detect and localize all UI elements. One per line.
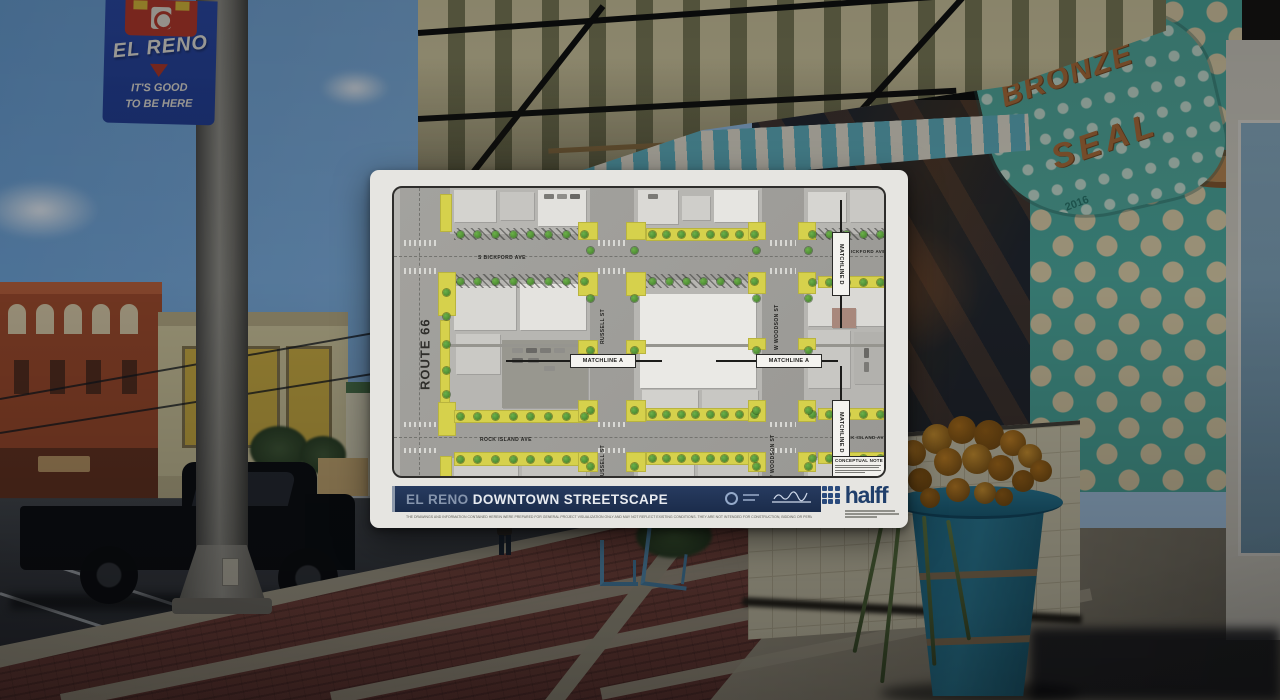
- map-block-field: [394, 188, 400, 478]
- map-building-roof: [714, 190, 758, 222]
- matchline-d-line: [840, 366, 842, 400]
- map-tree: [563, 278, 570, 285]
- map-tree: [805, 463, 812, 470]
- map-tree: [860, 279, 867, 286]
- sheet-title-project: EL RENO: [406, 492, 469, 507]
- map-tree: [666, 278, 673, 285]
- map-tree: [581, 456, 588, 463]
- map-building-roof: [454, 190, 496, 222]
- map-parked-car: [570, 194, 580, 199]
- map-alley: [450, 344, 590, 347]
- map-tree: [753, 407, 760, 414]
- map-tree: [587, 347, 594, 354]
- map-tree: [678, 411, 685, 418]
- seal-logo-text: [743, 494, 759, 496]
- map-tree: [474, 278, 481, 285]
- map-tree: [707, 411, 714, 418]
- map-crosswalk: [404, 240, 438, 246]
- map-tree: [809, 279, 816, 286]
- map-tree: [527, 278, 534, 285]
- halff-grid-icon: [822, 486, 840, 504]
- street-label-russell-st: RUSSELL ST: [600, 444, 613, 478]
- map-tree: [492, 231, 499, 238]
- map-sidewalk-highlight: [440, 194, 452, 232]
- map-tree: [510, 413, 517, 420]
- matchline-d-label: MATCHLINE D: [832, 400, 850, 464]
- halff-address-line: [845, 513, 899, 515]
- map-tree: [692, 411, 699, 418]
- map-tree: [631, 463, 638, 470]
- map-tree: [545, 456, 552, 463]
- map-tree: [753, 295, 760, 302]
- streetscape-plan-sheet: ROUTE 66 S BICKFORD AVE S BICKFORD AVE R…: [370, 170, 908, 528]
- halff-address-line: [845, 516, 877, 518]
- map-parked-car: [554, 348, 565, 353]
- map-tree: [751, 455, 758, 462]
- map-tree: [736, 455, 743, 462]
- map-tree: [805, 347, 812, 354]
- map-tree: [753, 463, 760, 470]
- map-tree: [474, 456, 481, 463]
- map-sidewalk-highlight: [440, 456, 452, 478]
- map-tree: [443, 367, 450, 374]
- map-tree: [457, 231, 464, 238]
- map-parked-car: [648, 194, 658, 199]
- map-tree: [809, 231, 816, 238]
- map-tree: [545, 278, 552, 285]
- map-tree: [492, 456, 499, 463]
- conceptual-note-title: CONCEPTUAL NOTE: [835, 458, 883, 463]
- street-label-russell-st: RUSSELL ST: [600, 298, 613, 344]
- halff-logo: halff: [822, 482, 904, 508]
- conceptual-note-textline: [835, 472, 865, 473]
- map-crosswalk: [770, 240, 796, 246]
- map-sidewalk-highlight: [578, 272, 598, 296]
- matchline-a-line: [820, 360, 838, 362]
- map-tree: [563, 231, 570, 238]
- map-tree: [663, 231, 670, 238]
- map-tree: [751, 231, 758, 238]
- map-building-roof: [854, 332, 884, 384]
- map-sidewalk-highlight: [748, 222, 766, 240]
- map-parked-car: [544, 194, 554, 199]
- map-tree: [649, 278, 656, 285]
- conceptual-note-textline: [835, 470, 881, 471]
- map-tree: [734, 278, 741, 285]
- map-tree: [474, 231, 481, 238]
- map-crosswalk: [598, 240, 626, 246]
- conceptual-note-box: CONCEPTUAL NOTE: [832, 456, 886, 478]
- map-tree: [707, 455, 714, 462]
- map-tree: [581, 231, 588, 238]
- street-label-w-woodson-st: W WOODSON ST: [774, 294, 787, 350]
- map-tree: [721, 231, 728, 238]
- map-building-roof: [456, 334, 500, 374]
- map-tree: [631, 247, 638, 254]
- sheet-disclaimer: THE DRAWINGS AND INFORMATION CONTAINED H…: [406, 515, 812, 519]
- map-tree: [805, 407, 812, 414]
- map-tree: [649, 411, 656, 418]
- map-tree: [678, 455, 685, 462]
- halff-address-line: [845, 510, 895, 512]
- sheet-title-name: DOWNTOWN STREETSCAPE: [473, 492, 668, 507]
- map-crosswalk: [404, 422, 438, 427]
- map-crosswalk: [404, 448, 438, 453]
- map-tree: [527, 231, 534, 238]
- map-tree: [443, 341, 450, 348]
- map-building-roof: [520, 284, 586, 330]
- map-tree: [877, 279, 884, 286]
- map-tree: [443, 289, 450, 296]
- map-building-roof: [500, 192, 534, 220]
- screenshot-root: BRONZE SEAL 2016 EL RENO IT'S GOOD TO BE…: [0, 0, 1280, 700]
- map-parked-car: [864, 362, 869, 372]
- map-crosswalk: [598, 268, 626, 274]
- matchline-a-label: MATCHLINE A: [570, 354, 636, 368]
- halff-wordmark: halff: [845, 484, 888, 507]
- map-tree: [753, 247, 760, 254]
- map-tree: [443, 391, 450, 398]
- map-tree: [587, 407, 594, 414]
- map-tree: [510, 278, 517, 285]
- map-tree: [492, 278, 499, 285]
- map-tree: [631, 347, 638, 354]
- map-crosswalk: [404, 268, 438, 274]
- map-parked-car: [864, 348, 869, 358]
- map-decor-layer: [394, 188, 884, 476]
- matchline-a-line: [634, 360, 662, 362]
- map-tree: [860, 231, 867, 238]
- matchline-a-label: MATCHLINE A: [756, 354, 822, 368]
- matchline-a-line: [716, 360, 756, 362]
- map-tree: [751, 278, 758, 285]
- map-sidewalk-highlight: [626, 272, 646, 296]
- map-tree: [805, 295, 812, 302]
- map-tree: [809, 455, 816, 462]
- map-tree: [581, 278, 588, 285]
- map-tree: [649, 231, 656, 238]
- map-crosswalk: [770, 268, 796, 274]
- map-parked-car: [557, 194, 567, 199]
- map-tree: [545, 231, 552, 238]
- map-tree: [527, 413, 534, 420]
- map-tree: [721, 411, 728, 418]
- map-alley: [634, 344, 762, 347]
- aerial-plan-map: ROUTE 66 S BICKFORD AVE S BICKFORD AVE R…: [392, 186, 886, 478]
- map-tree: [545, 413, 552, 420]
- map-tree: [581, 413, 588, 420]
- map-tree: [692, 231, 699, 238]
- map-tree: [492, 413, 499, 420]
- map-tree: [563, 413, 570, 420]
- map-building-roof: [638, 190, 678, 224]
- map-road-centerline: [394, 256, 886, 257]
- map-tree: [563, 456, 570, 463]
- map-tree: [683, 278, 690, 285]
- map-crosswalk: [598, 422, 626, 427]
- signature-logo: [771, 490, 813, 506]
- sheet-title-bar: EL RENO DOWNTOWN STREETSCAPE: [392, 486, 821, 512]
- map-tree: [631, 295, 638, 302]
- map-tree: [474, 413, 481, 420]
- map-tree: [736, 411, 743, 418]
- map-crosswalk: [770, 422, 796, 427]
- map-tree: [587, 247, 594, 254]
- street-label-s-bickford-ave: S BICKFORD AVE: [478, 255, 526, 261]
- map-tree: [692, 455, 699, 462]
- conceptual-note-textline: [835, 465, 881, 466]
- map-building-roof: [640, 294, 756, 388]
- map-sidewalk-highlight: [578, 222, 598, 240]
- map-tree: [457, 413, 464, 420]
- map-tree: [717, 278, 724, 285]
- map-tree: [510, 456, 517, 463]
- map-tree: [877, 411, 884, 418]
- map-sidewalk-highlight: [626, 222, 646, 240]
- map-building-roof: [682, 196, 710, 220]
- matchline-d-line: [840, 200, 842, 232]
- map-building-roof: [850, 190, 884, 222]
- map-tree: [678, 231, 685, 238]
- seal-logo-icon: [725, 492, 738, 505]
- sheet-title: EL RENO DOWNTOWN STREETSCAPE: [395, 492, 668, 507]
- map-alley: [804, 344, 886, 347]
- map-tree: [860, 411, 867, 418]
- map-tree: [721, 455, 728, 462]
- matchline-a-line: [506, 360, 570, 362]
- map-tree: [527, 456, 534, 463]
- map-tree: [631, 407, 638, 414]
- map-tree: [736, 231, 743, 238]
- map-parked-car: [512, 348, 523, 353]
- map-parked-car: [526, 348, 537, 353]
- map-building-roof: [454, 286, 516, 330]
- map-tree: [700, 278, 707, 285]
- street-label-rock-island-ave: ROCK ISLAND AVE: [480, 437, 532, 443]
- seal-logo-text: [743, 499, 755, 501]
- map-tree: [587, 463, 594, 470]
- matchline-d-label: MATCHLINE D: [832, 232, 850, 296]
- map-tree: [707, 231, 714, 238]
- matchline-d-line: [840, 294, 842, 328]
- map-tree: [663, 411, 670, 418]
- map-tree: [753, 347, 760, 354]
- map-tree: [649, 455, 656, 462]
- map-building-roof: [832, 308, 856, 328]
- map-parked-car: [540, 348, 551, 353]
- map-tree: [663, 455, 670, 462]
- map-tree: [805, 247, 812, 254]
- map-tree: [877, 231, 884, 238]
- map-tree: [510, 231, 517, 238]
- map-parked-car: [544, 366, 555, 371]
- map-tree: [457, 456, 464, 463]
- street-label-route-66: ROUTE 66: [414, 306, 436, 402]
- map-road-centerline: [394, 437, 886, 438]
- map-tree: [443, 313, 450, 320]
- street-label-w-woodson-st: W WOODSON ST: [770, 446, 783, 478]
- map-tree: [457, 278, 464, 285]
- conceptual-note-textline: [835, 467, 879, 468]
- map-tree: [587, 295, 594, 302]
